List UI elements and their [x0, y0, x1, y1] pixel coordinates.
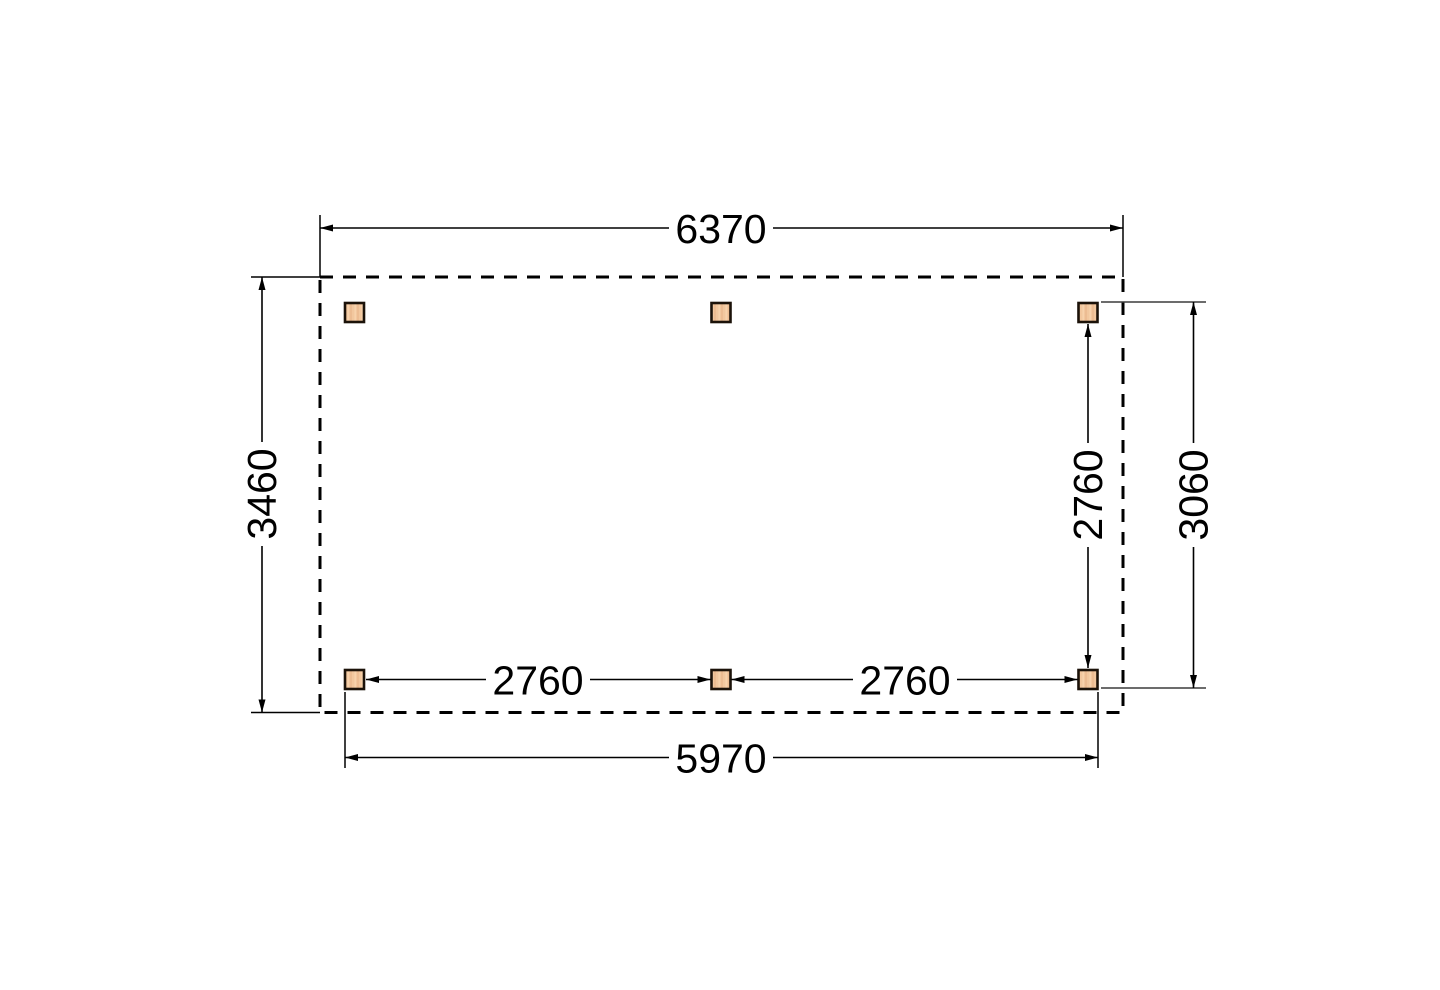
post-top-left — [345, 303, 364, 322]
roof-outline-dashed — [320, 277, 1123, 713]
floor-plan-canvas: 6370 3460 2760 3060 — [0, 0, 1440, 990]
arrowhead-right — [1110, 225, 1123, 232]
arrowhead-right — [698, 676, 711, 683]
label-bay-right: 2760 — [859, 658, 950, 704]
dimension-post-depth-spacing: 2760 — [1065, 324, 1111, 668]
post-top-middle — [712, 303, 731, 322]
dimension-outer-depth: 3060 — [1101, 302, 1217, 688]
arrowhead-up — [1085, 324, 1092, 337]
arrowhead-left — [732, 676, 745, 683]
dimension-bay-right: 2760 — [732, 657, 1078, 704]
dimension-total-depth: 3460 — [239, 277, 320, 713]
posts-group — [345, 303, 1098, 689]
floor-plan-drawing: 6370 3460 2760 3060 — [0, 0, 1440, 990]
label-total-width: 6370 — [675, 206, 766, 252]
arrowhead-down — [259, 700, 266, 713]
label-post-depth-spacing: 2760 — [1065, 449, 1111, 540]
post-bottom-middle — [712, 670, 731, 689]
arrowhead-right — [1085, 754, 1098, 761]
arrowhead-left — [345, 754, 358, 761]
arrowhead-left — [366, 676, 379, 683]
dimension-total-width: 6370 — [320, 205, 1123, 277]
arrowhead-right — [1065, 676, 1078, 683]
label-total-depth: 3460 — [239, 448, 285, 539]
arrowhead-up — [1190, 302, 1197, 315]
arrowhead-down — [1190, 675, 1197, 688]
arrowhead-left — [320, 225, 333, 232]
post-top-right — [1079, 303, 1098, 322]
dimension-post-span-width: 5970 — [345, 692, 1098, 782]
post-bottom-right — [1079, 670, 1098, 689]
arrowhead-down — [1085, 655, 1092, 668]
arrowhead-up — [259, 277, 266, 290]
label-post-span-width: 5970 — [675, 736, 766, 782]
post-bottom-left — [345, 670, 364, 689]
label-outer-depth: 3060 — [1171, 449, 1217, 540]
label-bay-left: 2760 — [492, 658, 583, 704]
dimension-bay-left: 2760 — [366, 657, 711, 704]
